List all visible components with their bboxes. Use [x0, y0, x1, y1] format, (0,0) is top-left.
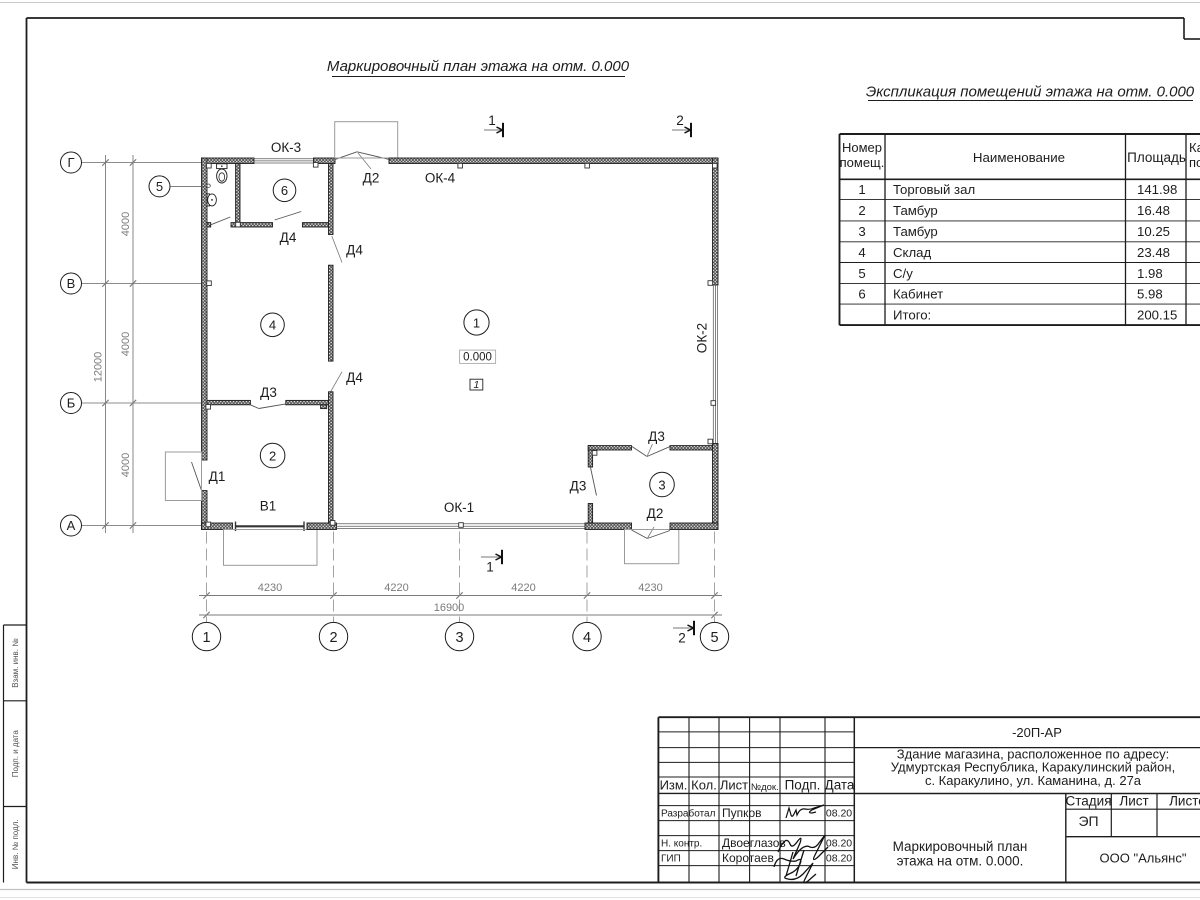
svg-text:пом.: пом.: [1189, 155, 1200, 170]
svg-text:Маркировочный план: Маркировочный план: [893, 839, 1028, 854]
svg-text:4230: 4230: [638, 582, 662, 594]
svg-text:-20П-АР: -20П-АР: [1012, 725, 1062, 740]
svg-text:Д2: Д2: [363, 171, 380, 186]
svg-text:Наименование: Наименование: [973, 150, 1065, 165]
svg-text:4: 4: [858, 245, 865, 260]
svg-text:Подп. и дата: Подп. и дата: [11, 730, 20, 778]
svg-text:4220: 4220: [384, 582, 408, 594]
svg-text:3: 3: [858, 224, 865, 239]
svg-text:Лист: Лист: [720, 778, 748, 793]
svg-text:2: 2: [858, 203, 865, 218]
svg-text:Д4: Д4: [346, 370, 363, 385]
svg-text:Д4: Д4: [280, 230, 297, 245]
svg-text:ОК-1: ОК-1: [444, 500, 474, 515]
svg-text:Д3: Д3: [648, 429, 665, 444]
svg-text:Категория: Категория: [1189, 140, 1200, 155]
svg-text:4000: 4000: [120, 332, 132, 356]
svg-text:200.15: 200.15: [1137, 308, 1177, 323]
svg-text:08.20: 08.20: [826, 808, 852, 820]
svg-text:6: 6: [281, 183, 288, 198]
svg-text:08.20: 08.20: [826, 838, 852, 850]
svg-text:3: 3: [658, 477, 665, 492]
svg-text:Д1: Д1: [209, 469, 226, 484]
svg-text:ГИП: ГИП: [661, 854, 681, 865]
svg-text:1: 1: [473, 379, 479, 391]
svg-text:Кабинет: Кабинет: [893, 287, 943, 302]
svg-text:4230: 4230: [258, 582, 282, 594]
svg-text:16.48: 16.48: [1137, 203, 1170, 218]
svg-text:Коротаев: Коротаев: [722, 851, 774, 865]
svg-text:4: 4: [269, 318, 276, 333]
svg-text:Номер: Номер: [842, 140, 882, 155]
svg-text:ЭП: ЭП: [1078, 813, 1098, 829]
svg-text:Г: Г: [67, 155, 74, 170]
svg-text:помещ.: помещ.: [840, 155, 885, 170]
svg-text:В1: В1: [260, 499, 277, 514]
svg-text:1.98: 1.98: [1137, 266, 1163, 281]
svg-text:23.48: 23.48: [1137, 245, 1170, 260]
svg-text:А: А: [67, 518, 76, 533]
svg-text:С/у: С/у: [893, 266, 913, 281]
svg-text:2: 2: [329, 630, 337, 646]
svg-text:2: 2: [678, 631, 686, 646]
svg-text:№док.: №док.: [751, 782, 779, 793]
svg-text:Двоеглазов: Двоеглазов: [722, 836, 786, 850]
svg-text:Экспликация помещений этажа на: Экспликация помещений этажа на отм. 0.00…: [866, 84, 1195, 101]
svg-text:Склад: Склад: [893, 245, 931, 260]
svg-text:Взам. инв. №: Взам. инв. №: [11, 638, 20, 688]
svg-text:4000: 4000: [120, 212, 132, 236]
svg-text:4: 4: [583, 630, 591, 646]
svg-text:Д3: Д3: [260, 385, 277, 400]
svg-text:ОК-2: ОК-2: [695, 323, 710, 353]
svg-text:Лист: Лист: [1119, 794, 1148, 809]
svg-text:1: 1: [858, 182, 865, 197]
svg-text:4000: 4000: [120, 453, 132, 477]
svg-text:10.25: 10.25: [1137, 224, 1170, 239]
svg-text:Изм.: Изм.: [660, 778, 688, 793]
svg-text:ОК-4: ОК-4: [425, 171, 456, 186]
svg-text:Итого:: Итого:: [893, 308, 931, 323]
svg-text:с. Каракулино, ул. Каманина, д: с. Каракулино, ул. Каманина, д. 27а: [925, 773, 1142, 788]
svg-text:Подп.: Подп.: [785, 778, 821, 793]
svg-text:Тамбур: Тамбур: [893, 203, 938, 218]
svg-text:Пупков: Пупков: [722, 806, 762, 820]
svg-text:этажа на отм. 0.000.: этажа на отм. 0.000.: [897, 854, 1024, 869]
svg-text:12000: 12000: [93, 352, 105, 383]
svg-text:Инв. № подл.: Инв. № подл.: [11, 819, 20, 869]
svg-text:2: 2: [676, 113, 684, 128]
svg-text:5.98: 5.98: [1137, 287, 1163, 302]
svg-text:Д3: Д3: [570, 479, 587, 494]
svg-text:Торговый зал: Торговый зал: [893, 182, 975, 197]
svg-text:Д2: Д2: [647, 506, 664, 521]
svg-text:Н. контр.: Н. контр.: [661, 839, 702, 850]
svg-text:Маркировочный план этажа на от: Маркировочный план этажа на отм. 0.000: [327, 58, 630, 75]
svg-text:1: 1: [488, 113, 496, 128]
svg-text:Дата: Дата: [825, 778, 855, 793]
svg-text:Д4: Д4: [346, 243, 363, 258]
svg-text:16900: 16900: [434, 602, 465, 614]
svg-text:Кол.: Кол.: [691, 778, 717, 793]
svg-text:Площадь: Площадь: [1127, 150, 1186, 165]
svg-text:2: 2: [269, 448, 276, 463]
svg-text:6: 6: [858, 287, 865, 302]
svg-text:ООО "Альянс": ООО "Альянс": [1100, 851, 1187, 866]
svg-text:Стадия: Стадия: [1065, 794, 1111, 809]
svg-text:Листов: Листов: [1169, 794, 1200, 809]
svg-text:0.000: 0.000: [463, 351, 492, 363]
svg-text:08.20: 08.20: [826, 853, 852, 865]
svg-text:ОК-3: ОК-3: [271, 140, 301, 155]
svg-text:В: В: [67, 276, 76, 291]
svg-text:1: 1: [473, 315, 480, 330]
svg-text:4220: 4220: [511, 582, 535, 594]
svg-text:Разработал: Разработал: [661, 808, 716, 820]
svg-text:Б: Б: [67, 396, 76, 411]
svg-text:5: 5: [156, 179, 163, 194]
svg-text:3: 3: [455, 630, 463, 646]
svg-text:Тамбур: Тамбур: [893, 224, 938, 239]
svg-text:5: 5: [710, 630, 718, 646]
svg-text:1: 1: [486, 560, 494, 575]
svg-text:1: 1: [202, 630, 210, 646]
svg-text:5: 5: [858, 266, 865, 281]
svg-text:141.98: 141.98: [1137, 182, 1177, 197]
